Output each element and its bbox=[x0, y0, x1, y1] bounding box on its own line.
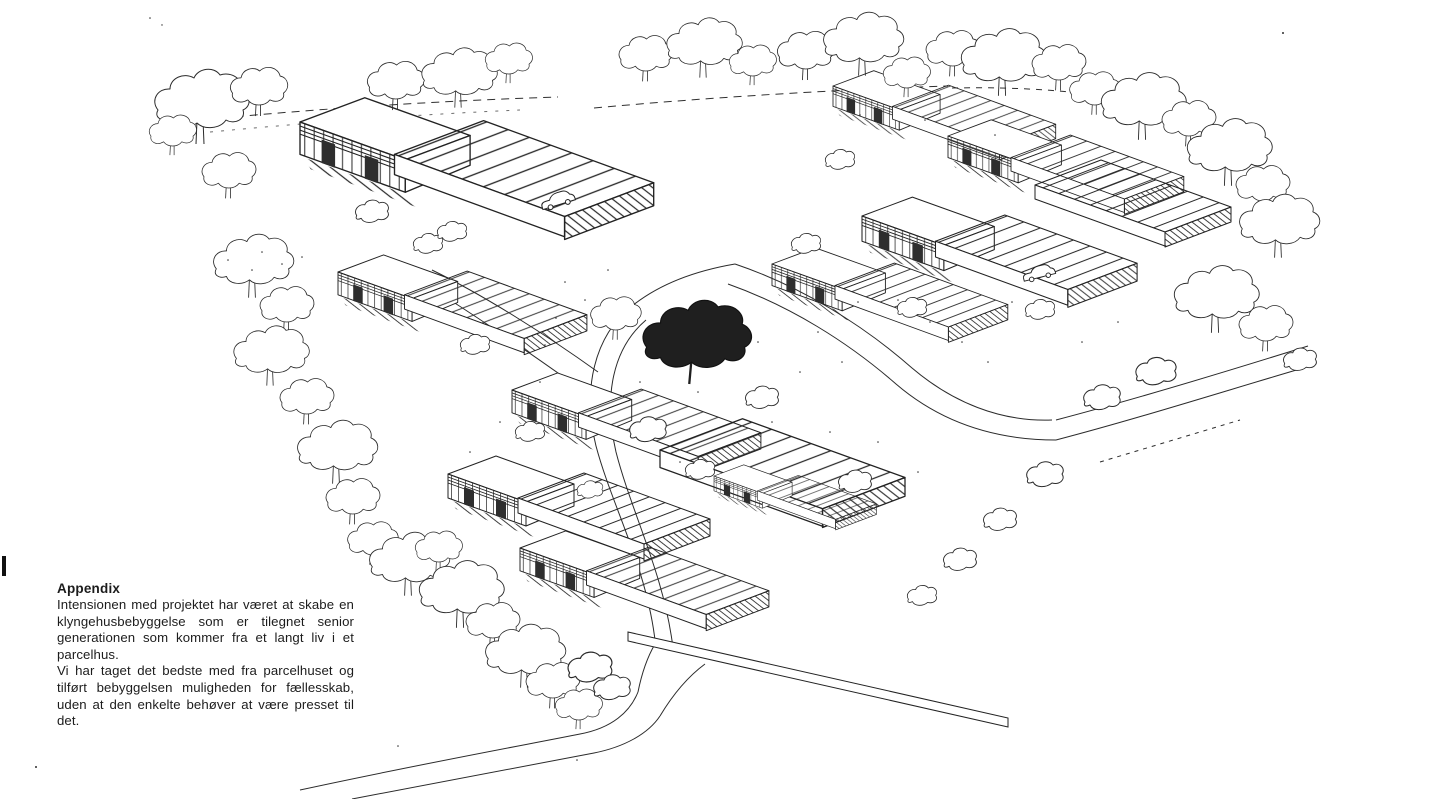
tree-icon bbox=[260, 287, 314, 333]
scan-edge-mark bbox=[2, 556, 6, 576]
boundary-wall bbox=[628, 632, 1008, 727]
house-pair bbox=[338, 255, 587, 355]
entrance-drive-edge bbox=[660, 664, 705, 716]
tree-icon bbox=[280, 379, 334, 425]
appendix-paragraph-2: Vi har taget det bedste med fra parcelhu… bbox=[57, 663, 354, 729]
tree-icon bbox=[234, 326, 310, 386]
bush-icon bbox=[1284, 348, 1317, 370]
tree-icon bbox=[149, 115, 196, 155]
appendix-text-block: Appendix Intensionen med projektet har v… bbox=[57, 581, 354, 730]
bush-icon bbox=[746, 386, 779, 408]
bush-icon bbox=[944, 548, 977, 570]
bush-icon bbox=[1027, 462, 1064, 487]
house-pair bbox=[300, 98, 654, 240]
bush-icon bbox=[1025, 299, 1054, 319]
tree-icon bbox=[202, 153, 256, 199]
bush-icon bbox=[984, 508, 1017, 530]
bush-icon bbox=[1136, 357, 1176, 384]
appendix-paragraph-1: Intensionen med projektet har været at s… bbox=[57, 597, 354, 663]
bush-icon bbox=[1084, 385, 1121, 410]
tree-icon bbox=[619, 36, 673, 82]
bush-icon bbox=[356, 200, 389, 222]
bush-icon bbox=[825, 149, 854, 169]
bush-icon bbox=[594, 675, 631, 700]
tree-icon bbox=[326, 479, 380, 525]
tree-icon bbox=[298, 420, 378, 484]
tree-icon bbox=[1240, 194, 1320, 258]
bush-icon bbox=[907, 585, 936, 605]
scanned-document-page: Appendix Intensionen med projektet har v… bbox=[0, 0, 1449, 799]
bush-icon bbox=[515, 421, 544, 441]
dark-tree-icon bbox=[643, 300, 752, 384]
road-bank-dashes bbox=[1100, 420, 1240, 462]
bush-icon bbox=[460, 334, 489, 354]
appendix-title: Appendix bbox=[57, 581, 354, 596]
roads bbox=[300, 264, 1310, 799]
public-road-edge bbox=[352, 716, 660, 799]
bush-icon bbox=[437, 221, 466, 241]
bush-icon bbox=[791, 233, 820, 253]
entrance-drive-edge bbox=[638, 644, 655, 692]
